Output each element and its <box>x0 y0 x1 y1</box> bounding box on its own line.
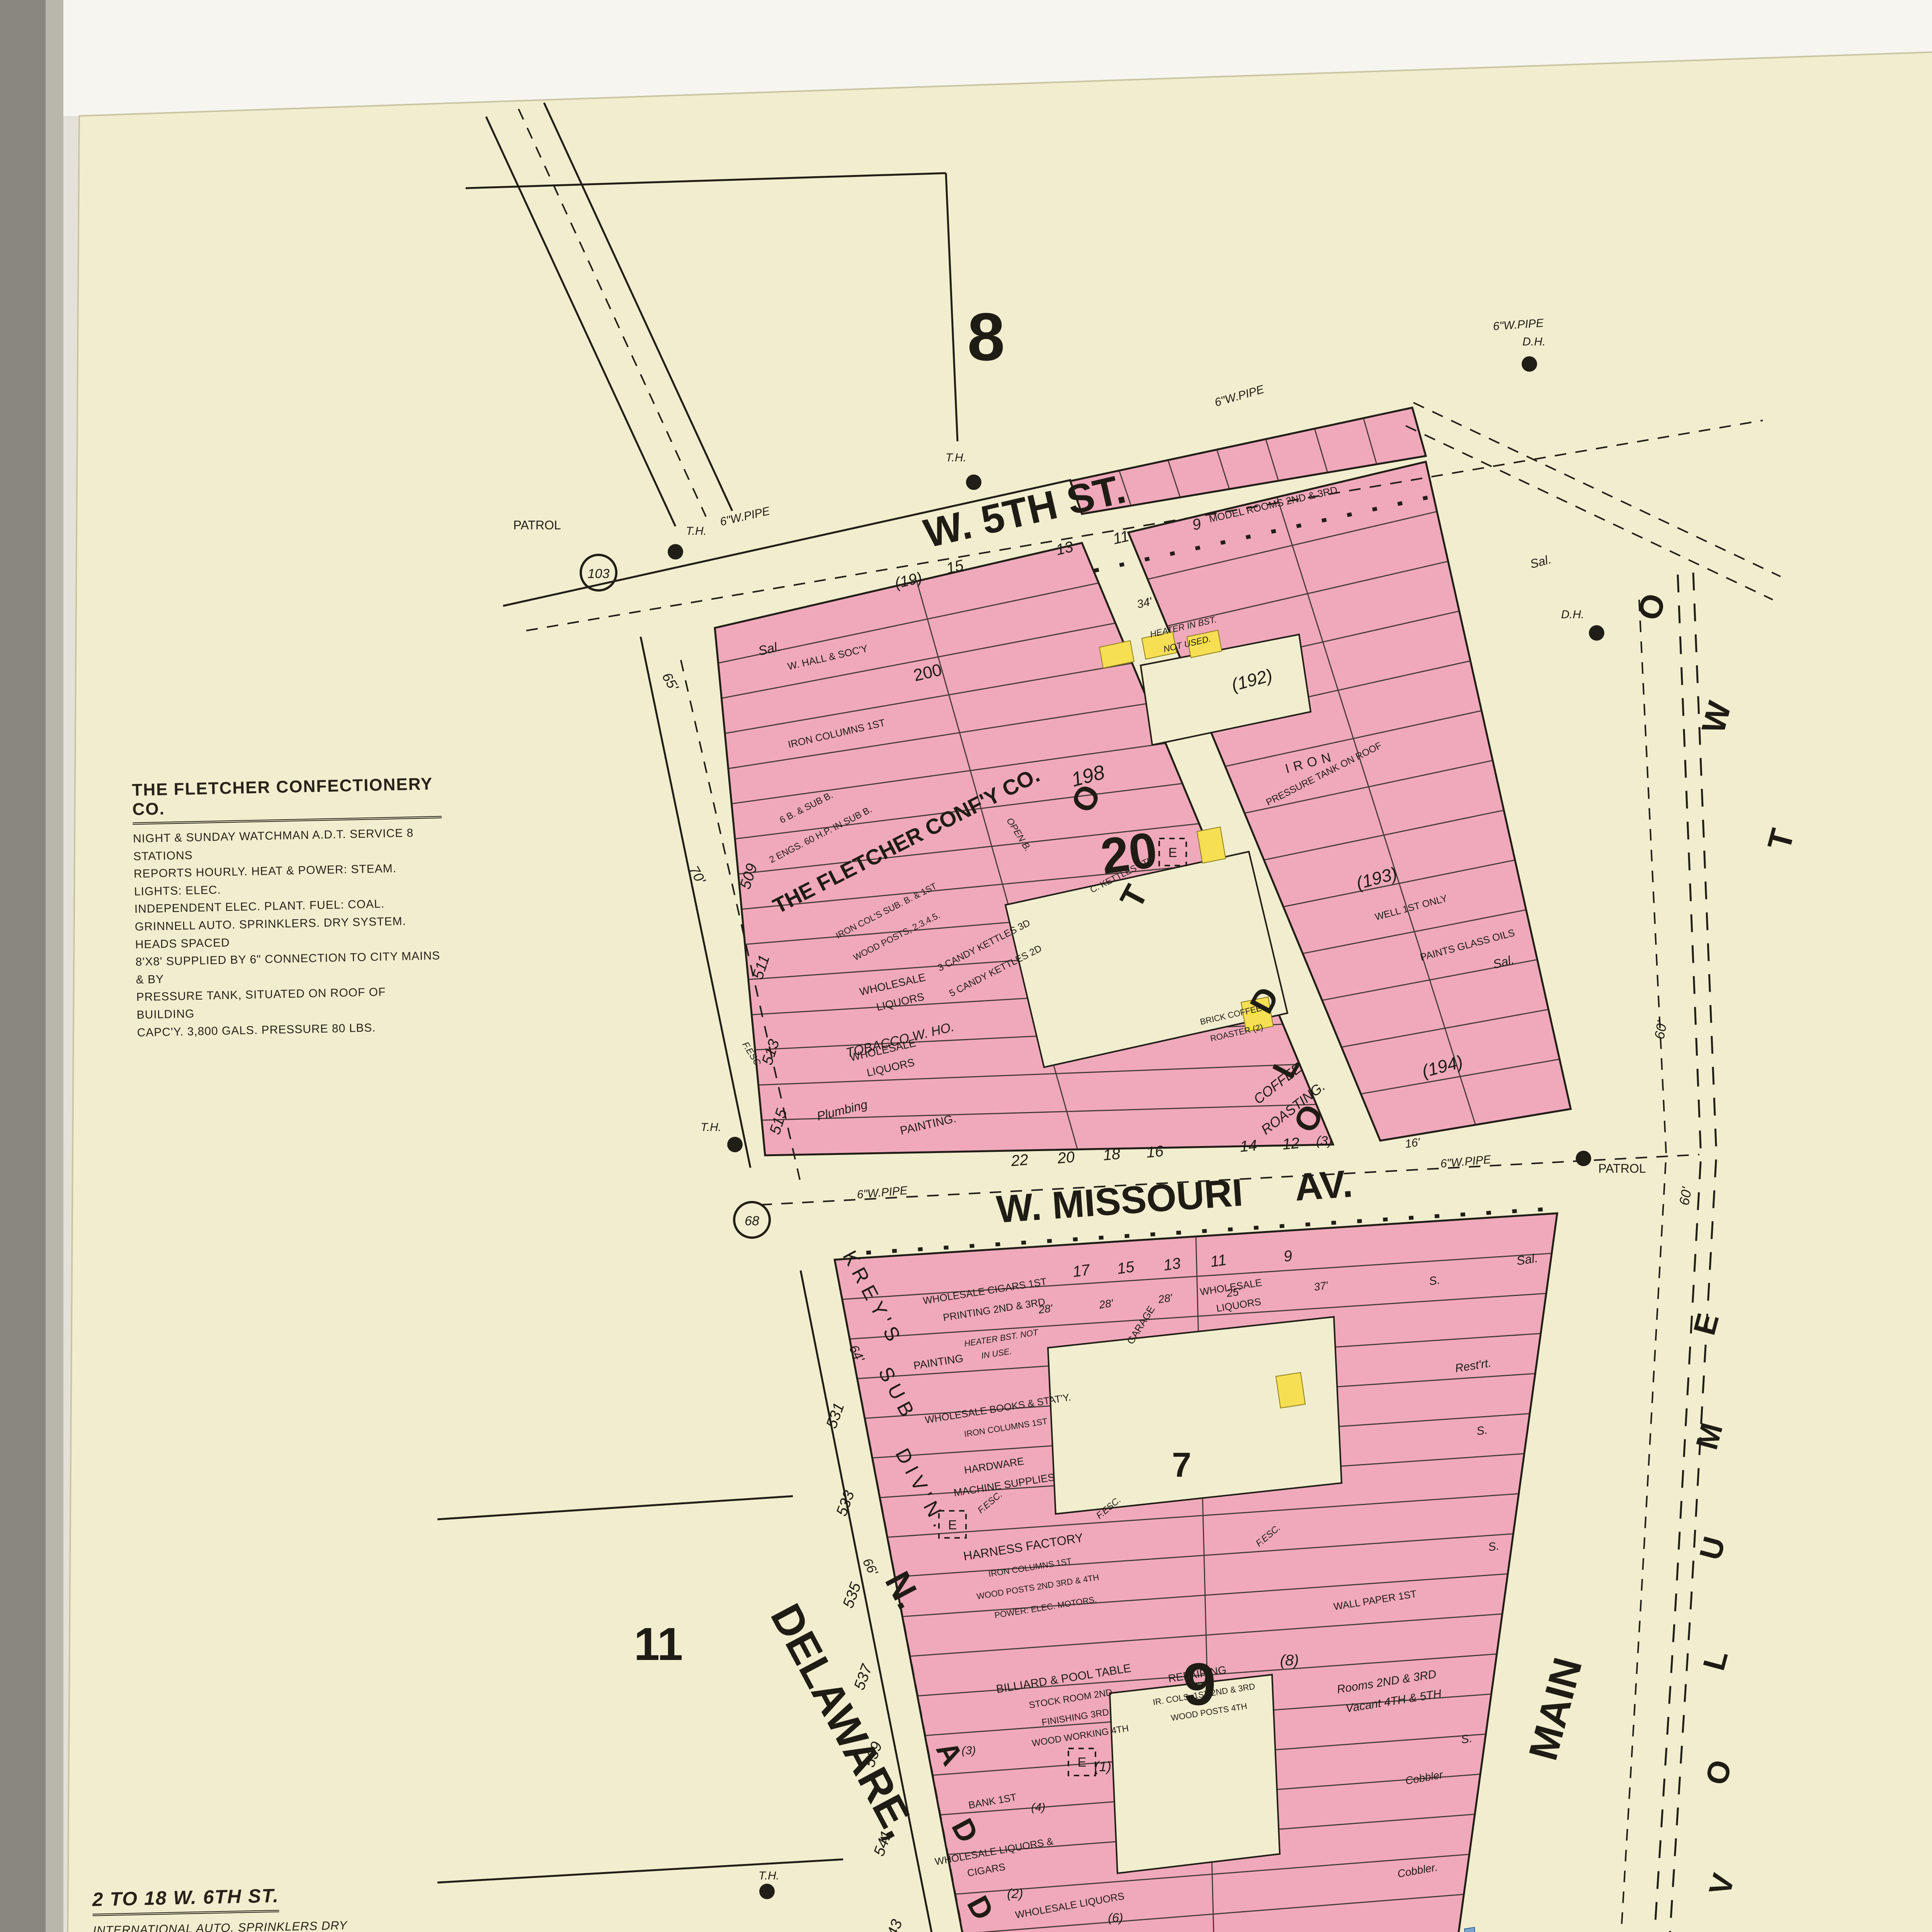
map-label: 18 <box>1102 1145 1121 1164</box>
hydrant-dot <box>1576 1151 1591 1166</box>
map-label: 28' <box>1098 1297 1114 1311</box>
note-line: INTERNATIONAL AUTO. SPRINKLERS DRY <box>93 1915 418 1932</box>
map-label: (3) <box>962 1744 976 1757</box>
map-label: D.H. <box>1561 608 1584 621</box>
map-label: S. <box>1487 1539 1500 1554</box>
map-label: 60' <box>1651 1019 1670 1040</box>
map-label: 16 <box>1146 1143 1165 1161</box>
map-label: 17 <box>1071 1261 1092 1281</box>
frame-building <box>1197 827 1226 863</box>
hydrant-dot <box>727 1137 743 1152</box>
note-2-to-18-w6th: 2 TO 18 W. 6TH ST. INTERNATIONAL AUTO. S… <box>92 1881 420 1932</box>
map-label: 7 <box>1172 1446 1191 1485</box>
map-label: 103 <box>588 566 610 581</box>
hydrant-dot <box>1589 625 1604 641</box>
map-label: (4) <box>1031 1801 1046 1814</box>
map-label: T.H. <box>701 1121 721 1134</box>
map-label: 68 <box>745 1214 759 1228</box>
map-label: PATROL <box>1598 1162 1646 1175</box>
map-label: 28' <box>1157 1291 1173 1305</box>
map-label: 12 <box>1282 1134 1300 1153</box>
hydrant-dot <box>1522 356 1537 372</box>
note-line: 8'X8' SUPPLIED BY 6" CONNECTION TO CITY … <box>135 947 445 989</box>
note-title: THE FLETCHER CONFECTIONERY CO. <box>132 774 442 825</box>
map-label: E <box>948 1518 957 1532</box>
note-body: NIGHT & SUNDAY WATCHMAN A.D.T. SERVICE 8… <box>133 824 446 1042</box>
map-label: 37' <box>1313 1279 1329 1293</box>
note-body: INTERNATIONAL AUTO. SPRINKLERS DRYSYSTEM… <box>93 1915 420 1932</box>
map-label: T.H. <box>759 1869 779 1882</box>
map-label: (1) <box>1094 1759 1111 1774</box>
note-line: NIGHT & SUNDAY WATCHMAN A.D.T. SERVICE 8… <box>133 824 443 866</box>
note-line: GRINNELL AUTO. SPRINKLERS. DRY SYSTEM. H… <box>134 912 444 954</box>
sanborn-map-sheet: Kansas City Mo.12NESWScale of Feet.50403… <box>0 0 1932 1932</box>
hydrant-dot <box>668 544 683 560</box>
map-label: 16' <box>1404 1136 1422 1150</box>
map-label: (2) <box>1007 1886 1023 1901</box>
note-line: REPORTS HOURLY. HEAT & POWER: STEAM. LIG… <box>134 859 444 901</box>
frame-building <box>1276 1372 1305 1408</box>
map-label: T.H. <box>946 451 966 464</box>
map-label: 13 <box>1162 1255 1182 1274</box>
map-label: T.H. <box>686 525 707 537</box>
block-number-11: 11 <box>634 1618 683 1670</box>
map-label: PATROL <box>513 518 561 532</box>
map-label: (6) <box>1108 1911 1123 1925</box>
map-label: AV. <box>1293 1162 1354 1209</box>
map-label: D.H. <box>1522 335 1546 348</box>
map-label: 22 <box>1010 1151 1029 1170</box>
note-fletcher-confectionery: THE FLETCHER CONFECTIONERY CO. NIGHT & S… <box>132 774 446 1042</box>
map-label: E <box>1168 845 1177 860</box>
map-label: (3) <box>1316 1134 1332 1148</box>
map-label: E <box>1078 1755 1087 1770</box>
map-label: S. <box>1476 1423 1488 1438</box>
hydrant-dot <box>966 474 981 490</box>
hydrant-dot <box>759 1884 775 1899</box>
map-label: 14 <box>1239 1137 1258 1155</box>
map-label: 15 <box>1116 1258 1136 1277</box>
map-label: S. <box>1428 1274 1441 1288</box>
note-line: PRESSURE TANK, SITUATED ON ROOF OF BUILD… <box>136 982 446 1024</box>
map-label: 60' <box>1676 1185 1695 1206</box>
map-label: 11 <box>1209 1251 1228 1270</box>
note-title: 2 TO 18 W. 6TH ST. <box>92 1884 279 1916</box>
map-label: (8) <box>1280 1652 1299 1669</box>
map-label: 20 <box>1056 1148 1075 1167</box>
map-label: S. <box>1460 1732 1473 1746</box>
block-number-8: 8 <box>967 299 1005 375</box>
